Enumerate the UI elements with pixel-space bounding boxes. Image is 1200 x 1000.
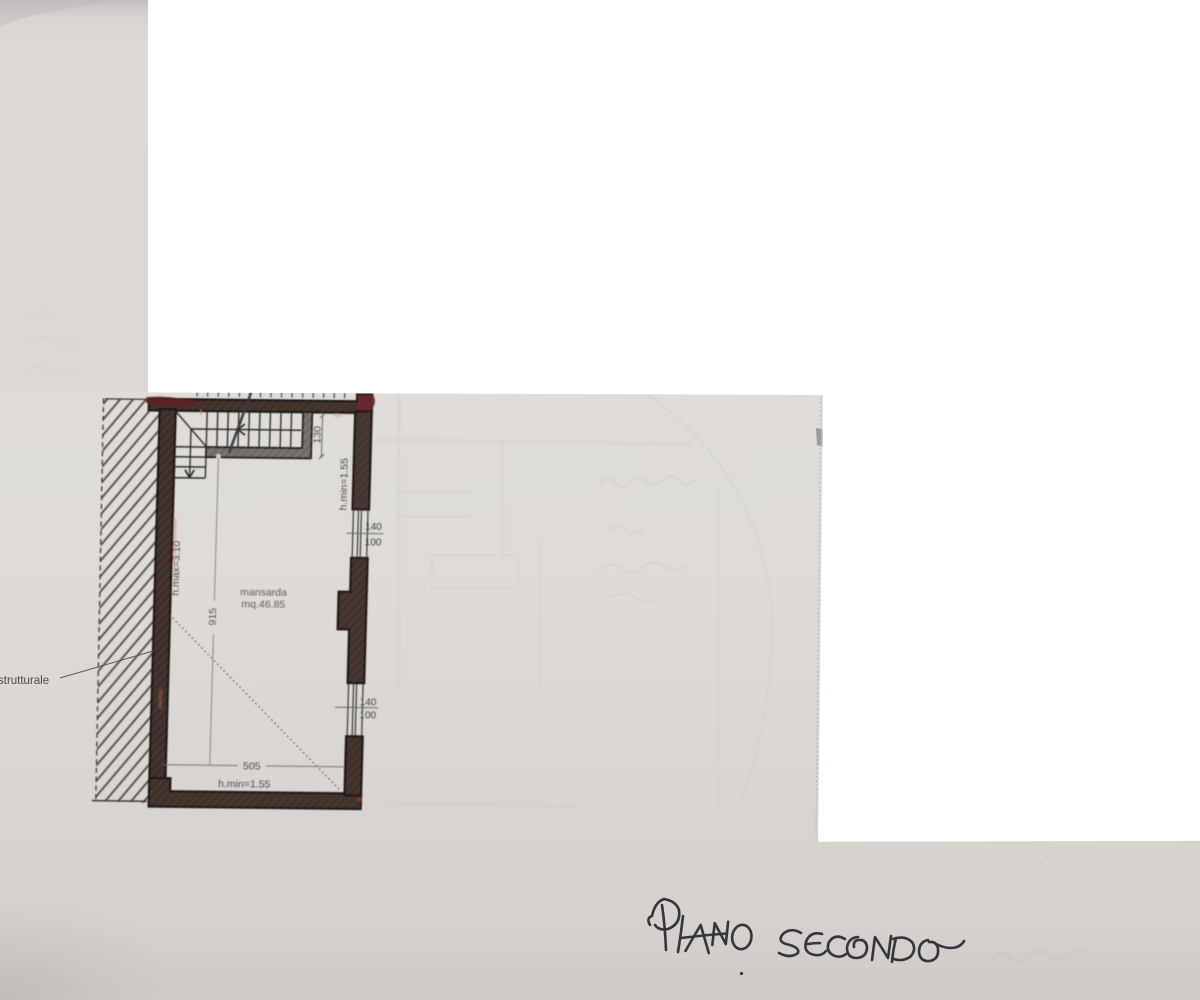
svg-text:strutturale: strutturale <box>0 675 49 687</box>
svg-text:130: 130 <box>311 426 323 444</box>
svg-text:505: 505 <box>243 760 261 772</box>
svg-text:h.max=3.10: h.max=3.10 <box>169 540 183 595</box>
svg-text:140: 140 <box>360 697 377 708</box>
svg-text:100: 100 <box>365 538 382 549</box>
svg-text:915: 915 <box>206 608 218 626</box>
svg-text:mq.46.85: mq.46.85 <box>241 599 285 612</box>
svg-text:h.min=1.55: h.min=1.55 <box>337 458 350 511</box>
svg-text:h.min=1.55: h.min=1.55 <box>218 778 271 791</box>
svg-text:100: 100 <box>359 710 376 721</box>
svg-text:140: 140 <box>365 522 382 533</box>
svg-text:mansarda: mansarda <box>240 587 287 600</box>
